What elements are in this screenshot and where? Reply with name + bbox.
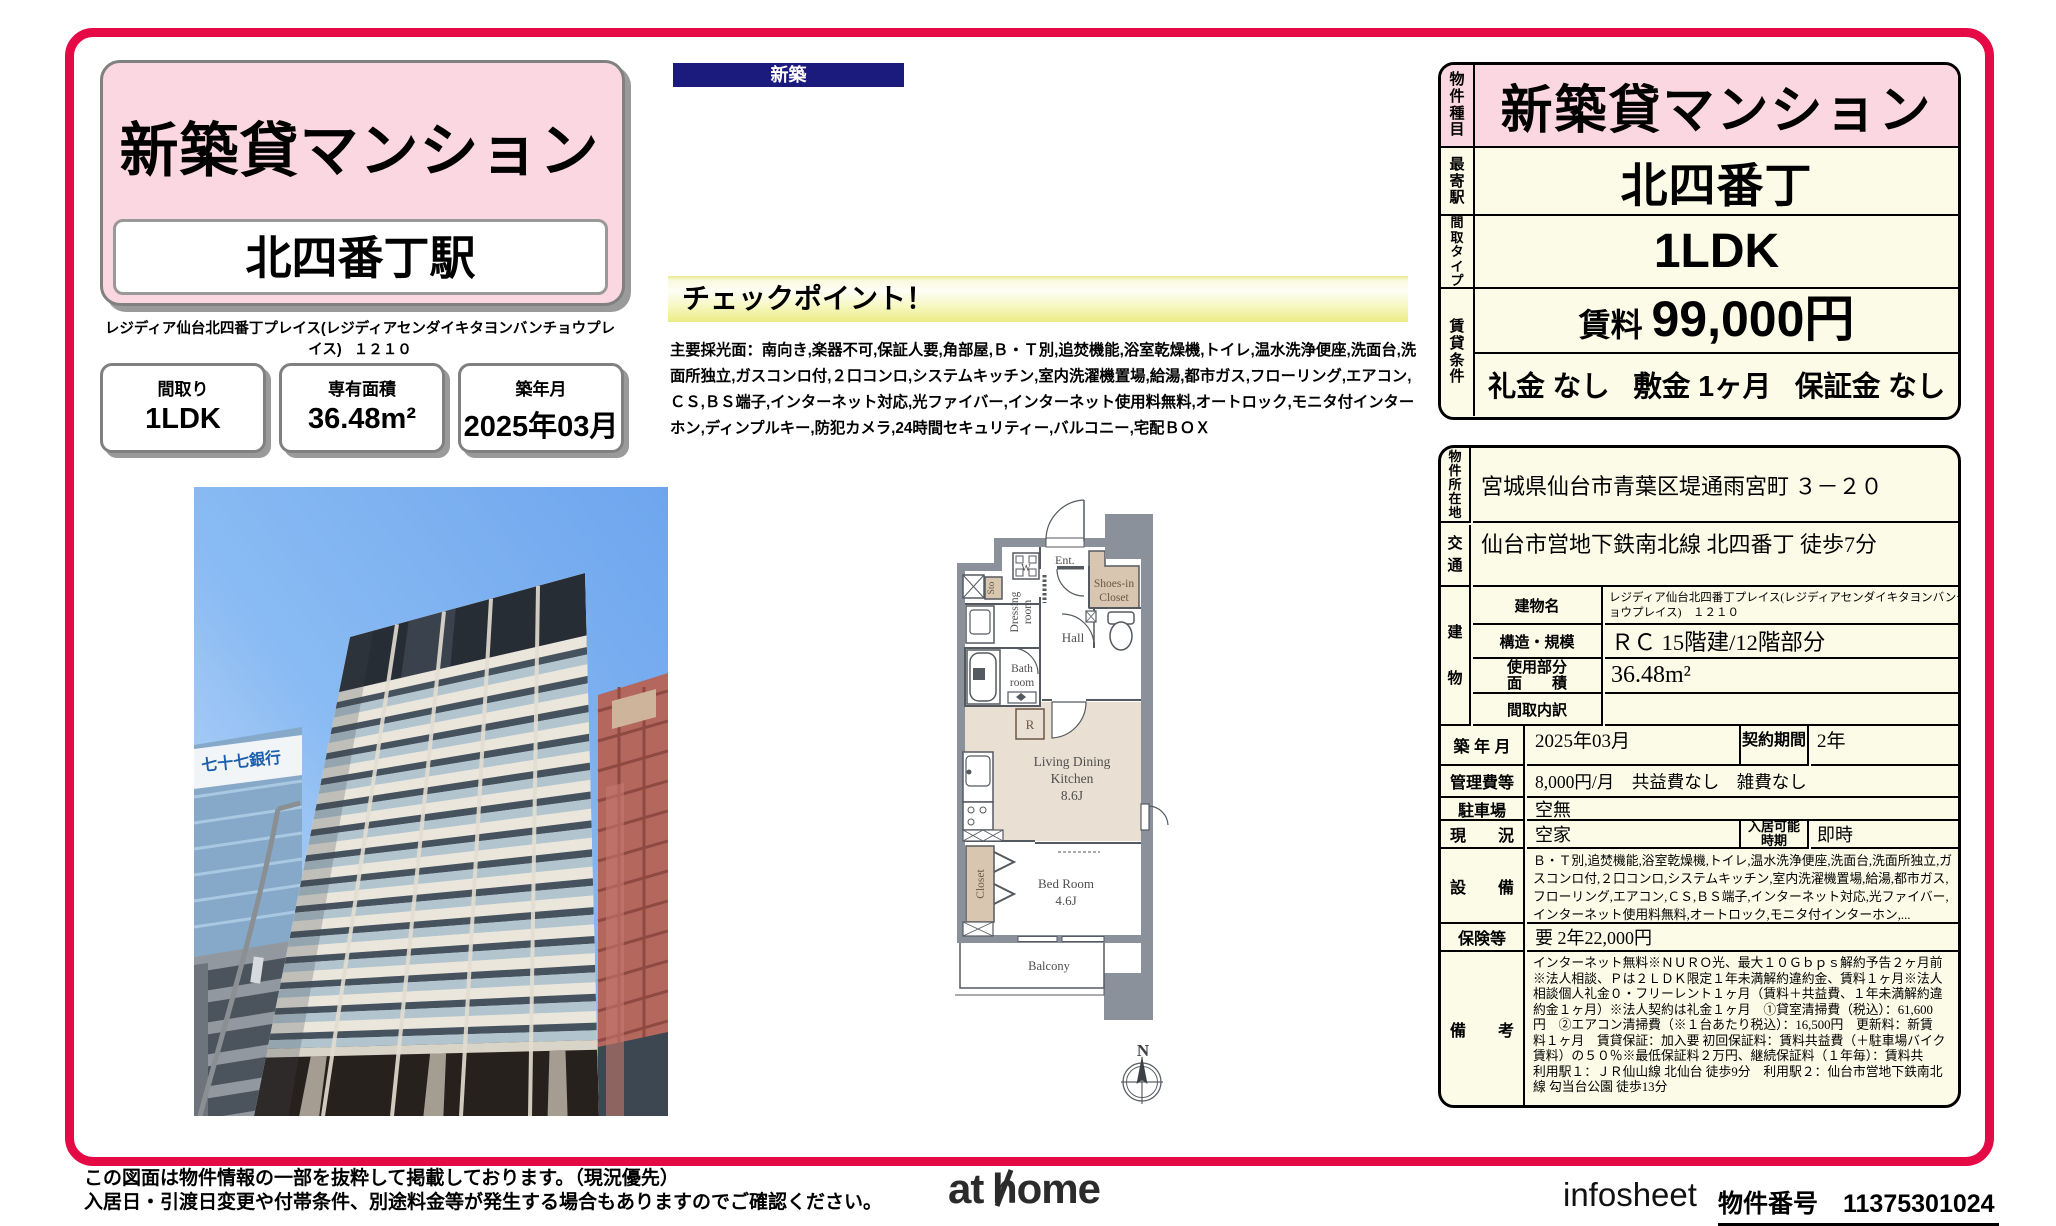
- svg-text:room: room: [1022, 600, 1034, 624]
- svg-text:Ent.: Ent.: [1055, 553, 1075, 567]
- svg-text:Living Dining: Living Dining: [1034, 754, 1111, 769]
- svg-text:at: at: [948, 1165, 984, 1212]
- svg-text:Bed Room: Bed Room: [1038, 876, 1094, 891]
- svg-text:R: R: [1026, 717, 1035, 732]
- svg-text:room: room: [1010, 677, 1034, 689]
- svg-text:Sto: Sto: [987, 581, 997, 594]
- svg-text:Closet: Closet: [1099, 592, 1129, 604]
- svg-text:W: W: [1021, 563, 1031, 574]
- svg-text:8.6J: 8.6J: [1061, 788, 1083, 803]
- svg-text:4.6J: 4.6J: [1055, 893, 1076, 908]
- svg-text:Hall: Hall: [1062, 630, 1085, 645]
- svg-text:Balcony: Balcony: [1028, 959, 1070, 973]
- svg-text:N: N: [1137, 1041, 1150, 1060]
- svg-text:Closet: Closet: [975, 869, 987, 899]
- svg-text:Bath: Bath: [1011, 663, 1033, 675]
- svg-text:Dressing: Dressing: [1009, 591, 1021, 632]
- svg-text:Shoes-in: Shoes-in: [1094, 578, 1135, 590]
- svg-text:Kitchen: Kitchen: [1051, 771, 1094, 786]
